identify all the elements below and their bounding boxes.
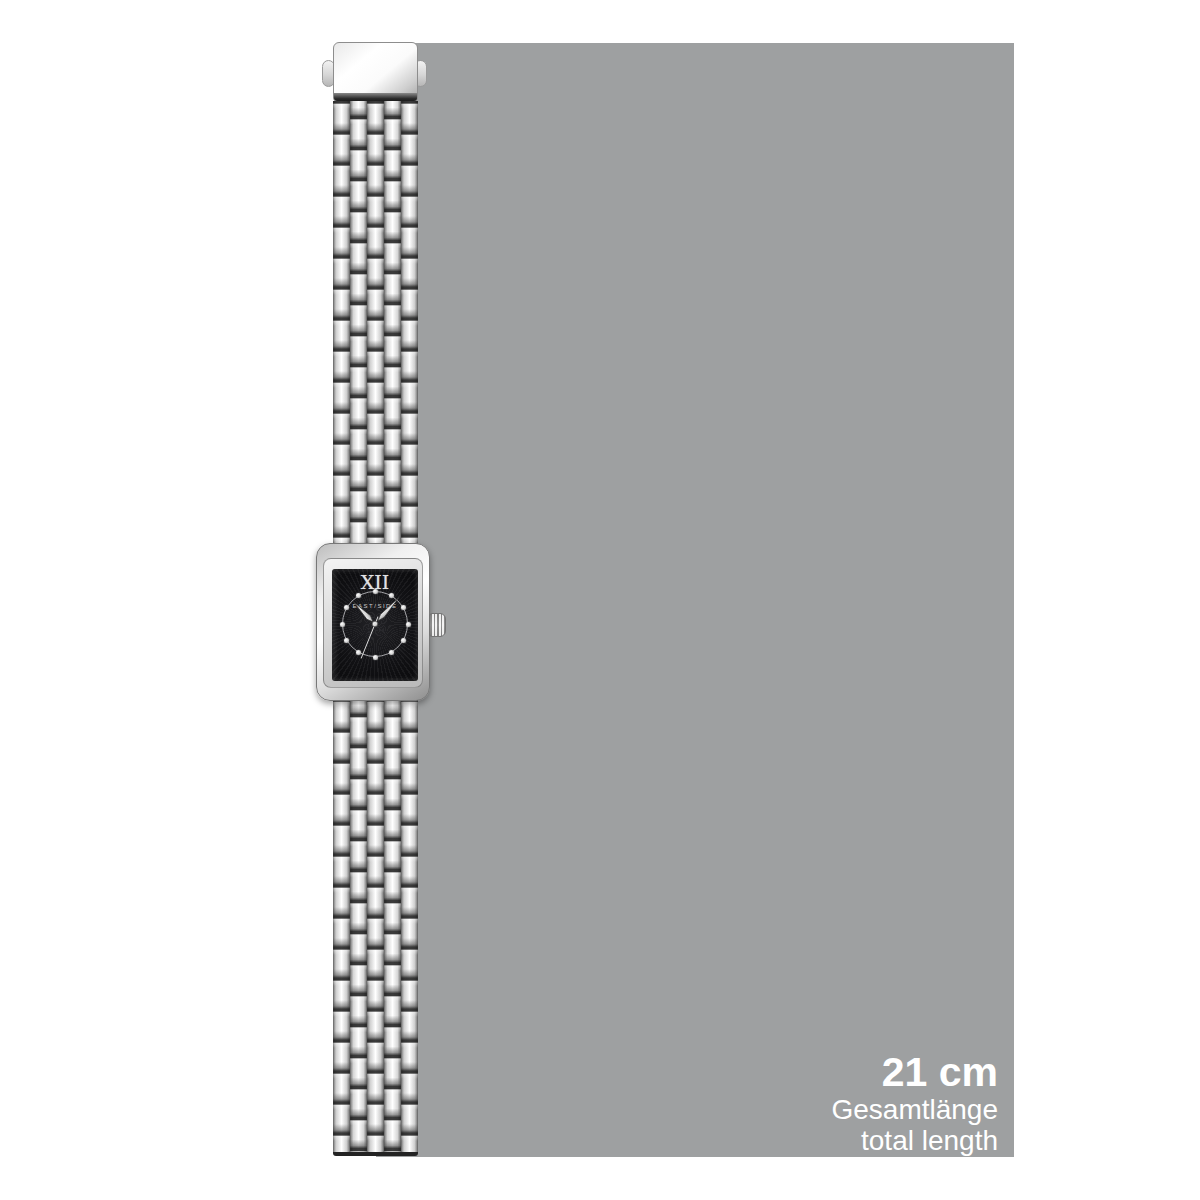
- bracelet-link-column: [401, 101, 418, 545]
- bracelet-link-column: [401, 699, 418, 1152]
- product-length-diagram: XII EAST/SIDE: [0, 0, 1200, 1200]
- bracelet-link-column: [333, 699, 350, 1152]
- watch-case: XII EAST/SIDE: [316, 543, 430, 701]
- bracelet-link-column: [350, 699, 367, 1152]
- bracelet-link-column: [384, 101, 401, 545]
- hour-hand: [352, 601, 374, 624]
- watch-dial: XII EAST/SIDE: [332, 569, 418, 681]
- clasp: [333, 42, 418, 102]
- bracelet-link-column: [384, 699, 401, 1152]
- hands-center-cap: [372, 621, 378, 627]
- length-label-english: total length: [831, 1125, 998, 1156]
- length-value: 21 cm: [831, 1050, 998, 1094]
- bracelet-link-column: [367, 699, 384, 1152]
- length-annotation: 21 cm Gesamtlänge total length: [831, 1050, 998, 1156]
- watch-hands: [332, 569, 418, 681]
- bracelet-lower: [333, 699, 418, 1156]
- total-length-bar: [376, 43, 1014, 1157]
- bracelet-upper: [333, 101, 418, 545]
- minute-hand: [376, 596, 401, 623]
- bracelet-link-column: [333, 101, 350, 545]
- length-label-german: Gesamtlänge: [831, 1094, 998, 1125]
- bracelet-link-column: [350, 101, 367, 545]
- crown: [429, 613, 446, 637]
- bracelet-link-column: [367, 101, 384, 545]
